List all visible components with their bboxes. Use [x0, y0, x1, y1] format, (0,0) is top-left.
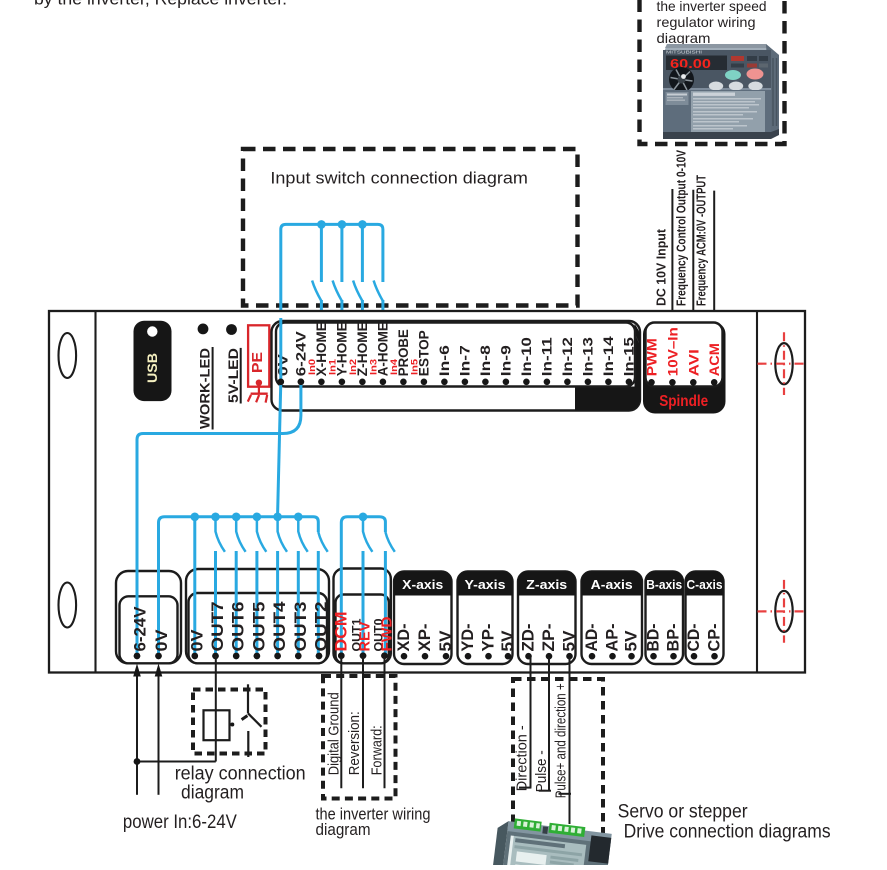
svg-text:YD-: YD- [459, 624, 477, 652]
svg-text:Servo or stepper: Servo or stepper [618, 801, 748, 823]
svg-text:DC 10V Input: DC 10V Input [655, 228, 669, 306]
svg-text:ACM: ACM [706, 343, 722, 376]
svg-text:Frequency ACM:0V -OUTPUT: Frequency ACM:0V -OUTPUT [695, 175, 709, 306]
svg-text:In4: In4 [389, 358, 400, 375]
svg-text:MITSUBISHI: MITSUBISHI [666, 50, 702, 55]
svg-text:power In:6-24V: power In:6-24V [123, 811, 237, 833]
svg-text:10V–In: 10V–In [664, 327, 680, 376]
svg-text:Drive connection diagrams: Drive connection diagrams [624, 820, 831, 842]
svg-text:In-14: In-14 [601, 336, 616, 377]
svg-text:In-7: In-7 [457, 345, 472, 376]
svg-text:YP-: YP- [480, 624, 498, 652]
svg-text:Z-axis: Z-axis [526, 577, 567, 592]
svg-text:In5: In5 [410, 358, 421, 375]
svg-text:OUT6: OUT6 [229, 602, 248, 652]
svg-text:CD-: CD- [685, 624, 703, 652]
svg-text:Forward:: Forward: [370, 725, 386, 775]
svg-text:FWD: FWD [378, 616, 395, 651]
svg-text:5V-LED: 5V-LED [225, 348, 241, 403]
svg-text:In1: In1 [328, 358, 339, 375]
svg-text:Reversion:: Reversion: [347, 711, 363, 775]
svg-text:diagram: diagram [181, 782, 244, 804]
svg-text:BP-: BP- [665, 624, 683, 652]
svg-text:In-10: In-10 [519, 337, 534, 376]
svg-text:Direction -: Direction - [515, 725, 531, 791]
svg-text:0V: 0V [152, 629, 171, 652]
svg-text:In3: In3 [369, 359, 380, 375]
svg-text:0V: 0V [275, 354, 290, 376]
svg-text:XD-: XD- [395, 624, 413, 652]
svg-text:5V: 5V [499, 630, 517, 651]
svg-text:C-axis: C-axis [687, 578, 723, 592]
svg-text:AVI: AVI [685, 349, 701, 376]
svg-text:AD-: AD- [583, 624, 601, 652]
svg-text:In-6: In-6 [437, 345, 452, 377]
svg-text:AP-: AP- [604, 624, 622, 652]
svg-text:In-8: In-8 [478, 345, 493, 377]
svg-text:diagram: diagram [316, 820, 371, 839]
svg-text:In-13: In-13 [580, 337, 595, 377]
svg-text:the inverter speed: the inverter speed [657, 0, 767, 14]
svg-text:5V: 5V [437, 630, 455, 651]
svg-text:by the inverter, Replace inver: by the inverter, Replace inverter. [34, 0, 287, 9]
svg-text:DCM: DCM [333, 612, 351, 652]
svg-text:WORK-LED: WORK-LED [196, 348, 212, 429]
svg-text:diagram: diagram [657, 31, 711, 46]
svg-text:In2: In2 [348, 359, 359, 375]
svg-text:Digital Ground: Digital Ground [326, 692, 342, 775]
svg-text:PE: PE [250, 352, 266, 373]
svg-text:A-axis: A-axis [591, 577, 633, 592]
svg-text:Spindle: Spindle [659, 393, 708, 410]
svg-text:In-15: In-15 [621, 337, 636, 377]
svg-text:PWM: PWM [644, 338, 660, 376]
svg-text:In-12: In-12 [560, 337, 575, 377]
svg-text:XP-: XP- [416, 624, 434, 652]
svg-text:OUT2: OUT2 [312, 602, 331, 652]
svg-text:CP-: CP- [706, 624, 724, 652]
svg-text:In-11: In-11 [539, 337, 554, 377]
svg-text:5V: 5V [623, 630, 641, 651]
svg-text:In0: In0 [307, 359, 318, 375]
svg-text:USB: USB [145, 353, 160, 383]
svg-text:OUT3: OUT3 [291, 602, 310, 652]
svg-text:Pulse -: Pulse - [534, 750, 550, 792]
svg-text:5V: 5V [561, 630, 579, 651]
svg-text:B-axis: B-axis [646, 578, 682, 592]
svg-text:Frequency Control Output 0-10: Frequency Control Output 0-10V [674, 150, 688, 306]
svg-text:Y-axis: Y-axis [465, 577, 506, 592]
svg-text:OUT5: OUT5 [249, 602, 268, 652]
svg-text:Pulse+ and direction +: Pulse+ and direction + [554, 683, 570, 798]
svg-text:OUT4: OUT4 [270, 601, 289, 652]
svg-text:Input switch connection diagra: Input switch connection diagram [270, 169, 528, 188]
svg-text:ZP-: ZP- [540, 624, 558, 652]
svg-text:0V: 0V [187, 629, 206, 652]
svg-text:OUT7: OUT7 [208, 602, 227, 652]
svg-text:ZD-: ZD- [520, 624, 538, 652]
svg-text:6-24V: 6-24V [131, 606, 150, 652]
svg-text:X-axis: X-axis [402, 577, 443, 592]
svg-text:regulator wiring: regulator wiring [657, 15, 756, 30]
svg-text:In-9: In-9 [498, 345, 513, 377]
svg-text:BD-: BD- [645, 624, 663, 652]
